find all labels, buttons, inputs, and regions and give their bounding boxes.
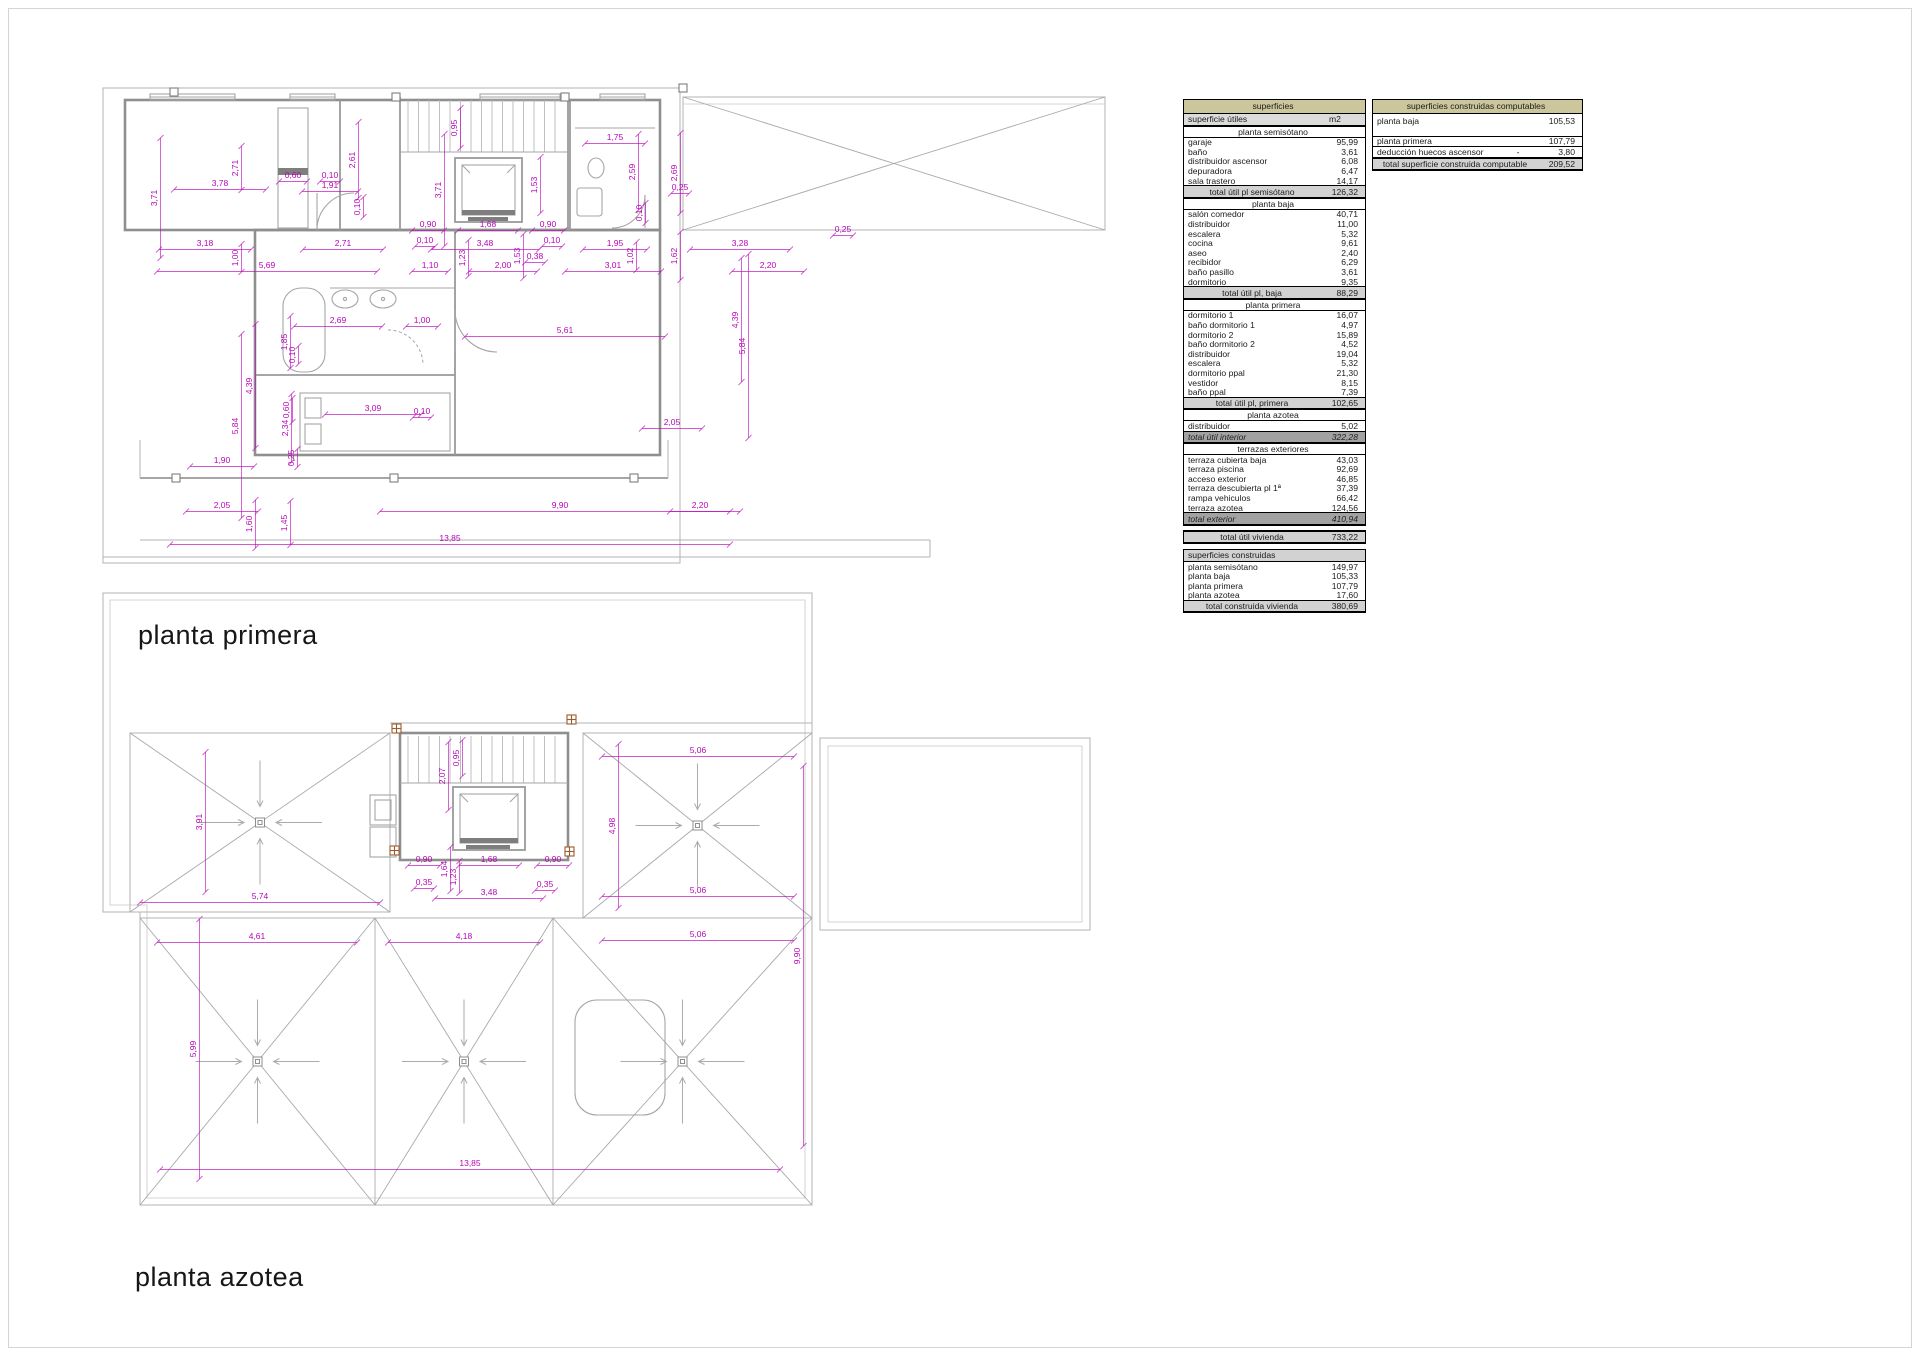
table-row: cocina9,61 bbox=[1184, 238, 1365, 248]
dimension-label: 1,91 bbox=[322, 180, 339, 190]
terrace-descubierta bbox=[683, 97, 1105, 230]
dimension-label: 0,10 bbox=[287, 346, 297, 363]
table-row: terrazas exteriores bbox=[1184, 443, 1365, 455]
dimension-label: 5,74 bbox=[252, 891, 269, 901]
table-row: baño pasillo3,61 bbox=[1184, 267, 1365, 277]
dimension-label: 2,05 bbox=[664, 417, 681, 427]
dimension-label: 0,90 bbox=[545, 854, 562, 864]
dimension-label: 3,48 bbox=[477, 238, 494, 248]
dimension-label: 0,25 bbox=[835, 224, 852, 234]
table-row: dormitorio ppal21,30 bbox=[1184, 368, 1365, 378]
table-row: dormitorio9,35 bbox=[1184, 277, 1365, 287]
table-row: baño3,61 bbox=[1184, 147, 1365, 157]
dimension-label: 0,10 bbox=[417, 235, 434, 245]
table-row: distribuidor11,00 bbox=[1184, 219, 1365, 229]
dimension-labels-azotea: 3,915,744,614,185,064,985,065,069,905,99… bbox=[137, 737, 807, 1182]
dimension-label: 3,71 bbox=[149, 189, 159, 206]
elevator-azotea bbox=[453, 787, 525, 850]
azotea-outline bbox=[103, 593, 812, 1205]
table-row: dormitorio 116,07 bbox=[1184, 311, 1365, 321]
dimension-label: 0,10 bbox=[352, 198, 362, 215]
skylight bbox=[575, 1000, 665, 1115]
dimension-label: 0,90 bbox=[416, 854, 433, 864]
dimension-label: 9,90 bbox=[552, 500, 569, 510]
bed bbox=[300, 393, 450, 451]
dimension-label: 0,10 bbox=[414, 406, 431, 416]
dimension-label: 3,01 bbox=[605, 260, 622, 270]
table-row: total construida vivienda380,69 bbox=[1184, 600, 1365, 612]
dimension-label: 5,69 bbox=[259, 260, 276, 270]
dimension-label: 0,10 bbox=[634, 204, 644, 221]
dimension-label: 5,06 bbox=[690, 885, 707, 895]
dimension-label: 2,20 bbox=[692, 500, 709, 510]
table-row: aseo2,40 bbox=[1184, 248, 1365, 258]
dimension-label: 1,00 bbox=[230, 249, 240, 266]
table-row: terraza cubierta baja43,03 bbox=[1184, 455, 1365, 465]
dimension-label: 9,90 bbox=[792, 947, 802, 964]
dimension-label: 1,68 bbox=[480, 219, 497, 229]
dimension-label: 1,53 bbox=[512, 247, 522, 264]
table-row: total exterior410,94 bbox=[1184, 512, 1365, 524]
plan-title-azotea: planta azotea bbox=[135, 1262, 304, 1293]
dimension-label: 13,85 bbox=[459, 1158, 481, 1168]
dimension-label: 3,71 bbox=[433, 181, 443, 198]
table-row: salón comedor40,71 bbox=[1184, 210, 1365, 220]
dimension-label: 0,35 bbox=[416, 877, 433, 887]
table-row: vestidor8,15 bbox=[1184, 378, 1365, 388]
table-row: terraza piscina92,69 bbox=[1184, 465, 1365, 475]
table-title: superficies bbox=[1184, 100, 1365, 114]
wardrobe bbox=[278, 108, 308, 228]
plan-title-primera: planta primera bbox=[138, 620, 318, 651]
dimension-label: 5,84 bbox=[737, 337, 747, 354]
dimension-label: 0,90 bbox=[540, 219, 557, 229]
dimension-label: 5,61 bbox=[557, 325, 574, 335]
dimension-label: 1,95 bbox=[607, 238, 624, 248]
pool bbox=[820, 738, 1090, 930]
table-row: planta semisótano149,97 bbox=[1184, 562, 1365, 572]
table-row: total útil vivienda733,22 bbox=[1184, 531, 1365, 543]
dimension-label: 0,38 bbox=[527, 251, 544, 261]
dimension-label: 2,59 bbox=[627, 163, 637, 180]
basins bbox=[330, 288, 455, 308]
dimension-label: 4,39 bbox=[730, 311, 740, 328]
dimension-label: 0,95 bbox=[449, 119, 459, 136]
table-row: escalera5,32 bbox=[1184, 229, 1365, 239]
dimension-label: 3,78 bbox=[212, 178, 229, 188]
table-row: acceso exterior46,85 bbox=[1184, 474, 1365, 484]
table-row: planta baja105,53 bbox=[1373, 114, 1582, 137]
dimension-label: 2,71 bbox=[230, 159, 240, 176]
dimension-label: 2,34 bbox=[280, 419, 290, 436]
table-row: total útil interior322,28 bbox=[1184, 431, 1365, 443]
dimension-label: 1,10 bbox=[422, 260, 439, 270]
dimension-label: 5,06 bbox=[690, 745, 707, 755]
table-row: depuradora6,47 bbox=[1184, 166, 1365, 176]
dimension-label: 0,90 bbox=[420, 219, 437, 229]
table-row: total superficie construida computable20… bbox=[1373, 158, 1582, 170]
dimension-label: 2,05 bbox=[214, 500, 231, 510]
dimension-label: 1,90 bbox=[214, 455, 231, 465]
dimension-label: 2,69 bbox=[669, 164, 679, 181]
dimension-label: 3,28 bbox=[732, 238, 749, 248]
dimension-label: 4,61 bbox=[249, 931, 266, 941]
dimension-label: 0,95 bbox=[451, 749, 461, 766]
dimension-label: 5,99 bbox=[188, 1040, 198, 1057]
dimension-label: 4,98 bbox=[607, 817, 617, 834]
floor-plan-azotea: 3,915,744,614,185,064,985,065,069,905,99… bbox=[103, 593, 1090, 1205]
stairs-azotea bbox=[408, 736, 555, 783]
dimension-label: 2,69 bbox=[330, 315, 347, 325]
dimension-label: 2,61 bbox=[347, 151, 357, 168]
pillar-marks bbox=[390, 715, 576, 856]
table-row: planta azotea17,60 bbox=[1184, 591, 1365, 601]
dimension-label: 5,84 bbox=[230, 417, 240, 434]
dimension-label: 5,06 bbox=[690, 929, 707, 939]
dimension-label: 1,53 bbox=[529, 176, 539, 193]
table-row: planta primera107,79 bbox=[1184, 581, 1365, 591]
dimension-label: 2,71 bbox=[335, 238, 352, 248]
table-row: planta primera bbox=[1184, 299, 1365, 311]
table-row: deducción huecos ascensor-3,80 bbox=[1373, 147, 1582, 158]
table-row: dormitorio 215,89 bbox=[1184, 330, 1365, 340]
table-row: superficies construidas bbox=[1184, 550, 1365, 562]
table-row: planta baja bbox=[1184, 198, 1365, 210]
dimension-label: 2,20 bbox=[760, 260, 777, 270]
table-row: garaje95,99 bbox=[1184, 138, 1365, 148]
dimension-label: 0,60 bbox=[281, 401, 291, 418]
table-row: distribuidor5,02 bbox=[1184, 421, 1365, 431]
terrace-outline bbox=[103, 88, 680, 563]
dimension-label: 2,07 bbox=[437, 767, 447, 784]
dimension-label: 0,60 bbox=[285, 170, 302, 180]
toilet bbox=[588, 158, 604, 178]
table-row: recibidor6,29 bbox=[1184, 258, 1365, 268]
floor-plan-canvas: 2,713,783,713,181,005,690,600,101,912,61… bbox=[0, 0, 1920, 1356]
dimension-label: 13,85 bbox=[439, 533, 461, 543]
dimension-label: 0,35 bbox=[537, 879, 554, 889]
dimension-label: 1,68 bbox=[481, 854, 498, 864]
table-row: planta semisótano bbox=[1184, 126, 1365, 138]
dimension-label: 0,10 bbox=[544, 235, 561, 245]
table-row: superficie útilesm2 bbox=[1184, 114, 1365, 126]
table-row: escalera5,32 bbox=[1184, 359, 1365, 369]
table-row: baño ppal7,39 bbox=[1184, 387, 1365, 397]
dimension-label: 1,02 bbox=[625, 247, 635, 264]
table-superficies: superficiessuperficie útilesm2planta sem… bbox=[1183, 99, 1366, 613]
shower bbox=[577, 188, 602, 216]
dimension-label: 0,25 bbox=[672, 182, 689, 192]
dimension-label: 3,09 bbox=[365, 403, 382, 413]
table-title: superficies construidas computables bbox=[1373, 100, 1582, 114]
dimension-label: 1,45 bbox=[279, 514, 289, 531]
table-row: planta azotea bbox=[1184, 409, 1365, 421]
elevator bbox=[455, 158, 522, 222]
table-row: total útil pl, primera102,65 bbox=[1184, 397, 1365, 409]
upper-block-walls bbox=[125, 100, 660, 230]
roof-slopes-and-drains bbox=[130, 733, 812, 1205]
dimension-label: 1,60 bbox=[244, 515, 254, 532]
dimension-label: 1,75 bbox=[607, 132, 624, 142]
floor-plan-primera: 2,713,783,713,181,005,690,600,101,912,61… bbox=[103, 84, 1105, 563]
dimension-label: 4,39 bbox=[244, 377, 254, 394]
dimension-label: 1,23 bbox=[457, 249, 467, 266]
dimension-label: 0,10 bbox=[322, 170, 339, 180]
table-row: total útil pl, baja88,29 bbox=[1184, 286, 1365, 298]
table-row: terraza descubierta pl 1ª37,39 bbox=[1184, 484, 1365, 494]
table-row: planta primera107,79 bbox=[1373, 137, 1582, 148]
dimension-label: 3,91 bbox=[194, 813, 204, 830]
table-row: baño dormitorio 14,97 bbox=[1184, 320, 1365, 330]
dimension-label: 1,00 bbox=[414, 315, 431, 325]
table-row: distribuidor ascensor6,08 bbox=[1184, 157, 1365, 167]
dimension-label: 2,00 bbox=[495, 260, 512, 270]
table-row: terraza azotea124,56 bbox=[1184, 503, 1365, 513]
table-row: baño dormitorio 24,52 bbox=[1184, 339, 1365, 349]
dimension-label: 3,18 bbox=[197, 238, 214, 248]
dimension-label: 1,23 bbox=[448, 868, 458, 885]
table-superficies-computables: superficies construidas computablesplant… bbox=[1372, 99, 1583, 171]
table-row: total útil pl semisótano126,32 bbox=[1184, 185, 1365, 197]
dimension-label: 3,48 bbox=[481, 887, 498, 897]
dimension-label: 0,25 bbox=[286, 449, 296, 466]
table-row: distribuidor19,04 bbox=[1184, 349, 1365, 359]
dimension-label: 4,18 bbox=[456, 931, 473, 941]
table-row: rampa vehiculos66,42 bbox=[1184, 493, 1365, 503]
dimension-label: 1,62 bbox=[669, 247, 679, 264]
table-row: planta baja105,33 bbox=[1184, 571, 1365, 581]
table-row: sala trastero14,17 bbox=[1184, 176, 1365, 186]
stairs bbox=[408, 100, 555, 152]
